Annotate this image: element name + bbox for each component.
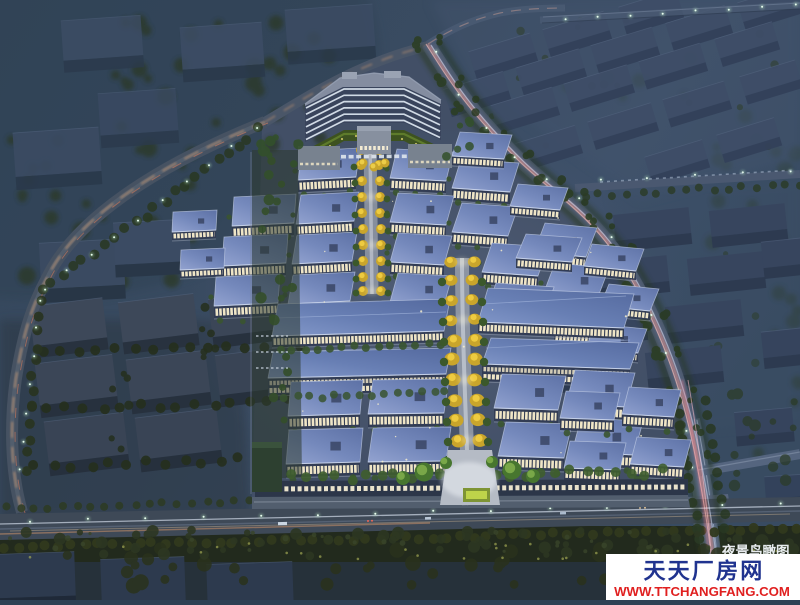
- svg-text:WWW.TTCHANGFANG.COM: WWW.TTCHANGFANG.COM: [614, 584, 790, 599]
- svg-text:天天厂房网: 天天厂房网: [643, 559, 764, 584]
